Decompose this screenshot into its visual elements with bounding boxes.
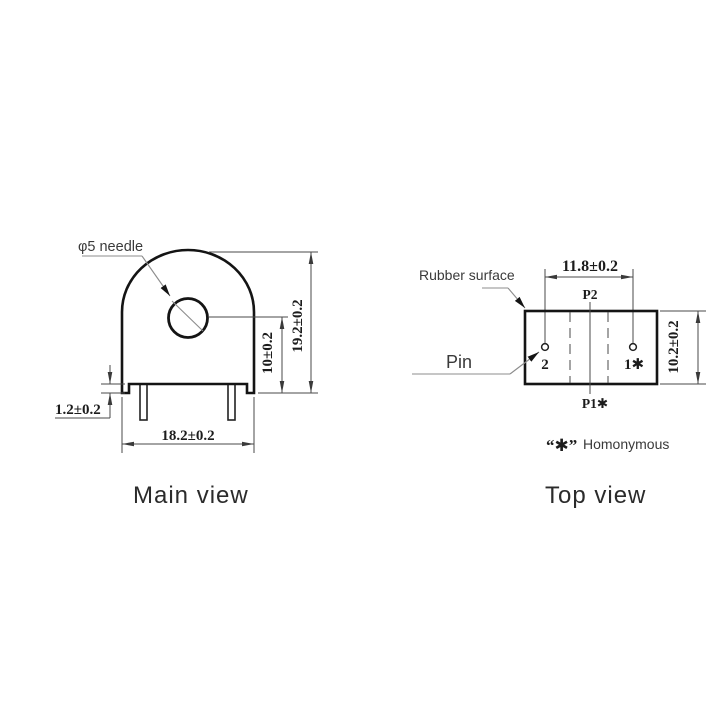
hole-label: φ5 needle [78, 239, 143, 255]
dimension-text: 10±0.2 [260, 332, 276, 374]
dimension-hole-center-height: 10±0.2 [209, 317, 288, 393]
homonymous-symbol-icon: “✱” [546, 436, 577, 455]
terminal-p2-label: P2 [583, 287, 598, 302]
needle-leader-arrow [142, 256, 170, 296]
main-view-right-pin [228, 384, 235, 420]
technical-drawing-svg: φ5 needle 19.2±0.2 10±0.2 18.2±0.2 [0, 0, 720, 720]
top-view-pin-2 [542, 344, 549, 351]
homonymous-legend: “✱” Homonymous [546, 436, 669, 455]
dimension-text: 11.8±0.2 [562, 258, 618, 275]
main-view-hole [169, 299, 208, 338]
pin-1-label: 1✱ [624, 357, 644, 373]
pin-label: Pin [446, 352, 472, 372]
dimension-text: 10.2±0.2 [666, 320, 682, 373]
dimension-text: 1.2±0.2 [55, 402, 101, 418]
terminal-p1-label: P1✱ [582, 396, 608, 411]
main-view-caption: Main view [133, 482, 249, 509]
dimension-text: 19.2±0.2 [290, 299, 306, 352]
rubber-leader-arrow [508, 288, 525, 308]
dimension-body-depth: 10.2±0.2 [660, 311, 706, 384]
homonymous-label: Homonymous [583, 436, 669, 452]
top-view-caption: Top view [545, 482, 646, 509]
main-view-left-pin [140, 384, 147, 420]
dimension-text: 18.2±0.2 [161, 428, 214, 444]
dimension-pin-spacing: 11.8±0.2 [545, 258, 633, 277]
top-view-pin-1 [630, 344, 637, 351]
main-view: φ5 needle 19.2±0.2 10±0.2 18.2±0.2 [55, 239, 318, 509]
rubber-surface-label: Rubber surface [419, 267, 515, 283]
technical-drawing-page: φ5 needle 19.2±0.2 10±0.2 18.2±0.2 [0, 0, 720, 720]
dimension-foot-step: 1.2±0.2 [55, 365, 125, 418]
top-view: 11.8±0.2 P2 P1✱ 2 1✱ 10.2±0.2 Rubber sur… [412, 258, 706, 509]
pin-2-label: 2 [541, 357, 549, 373]
